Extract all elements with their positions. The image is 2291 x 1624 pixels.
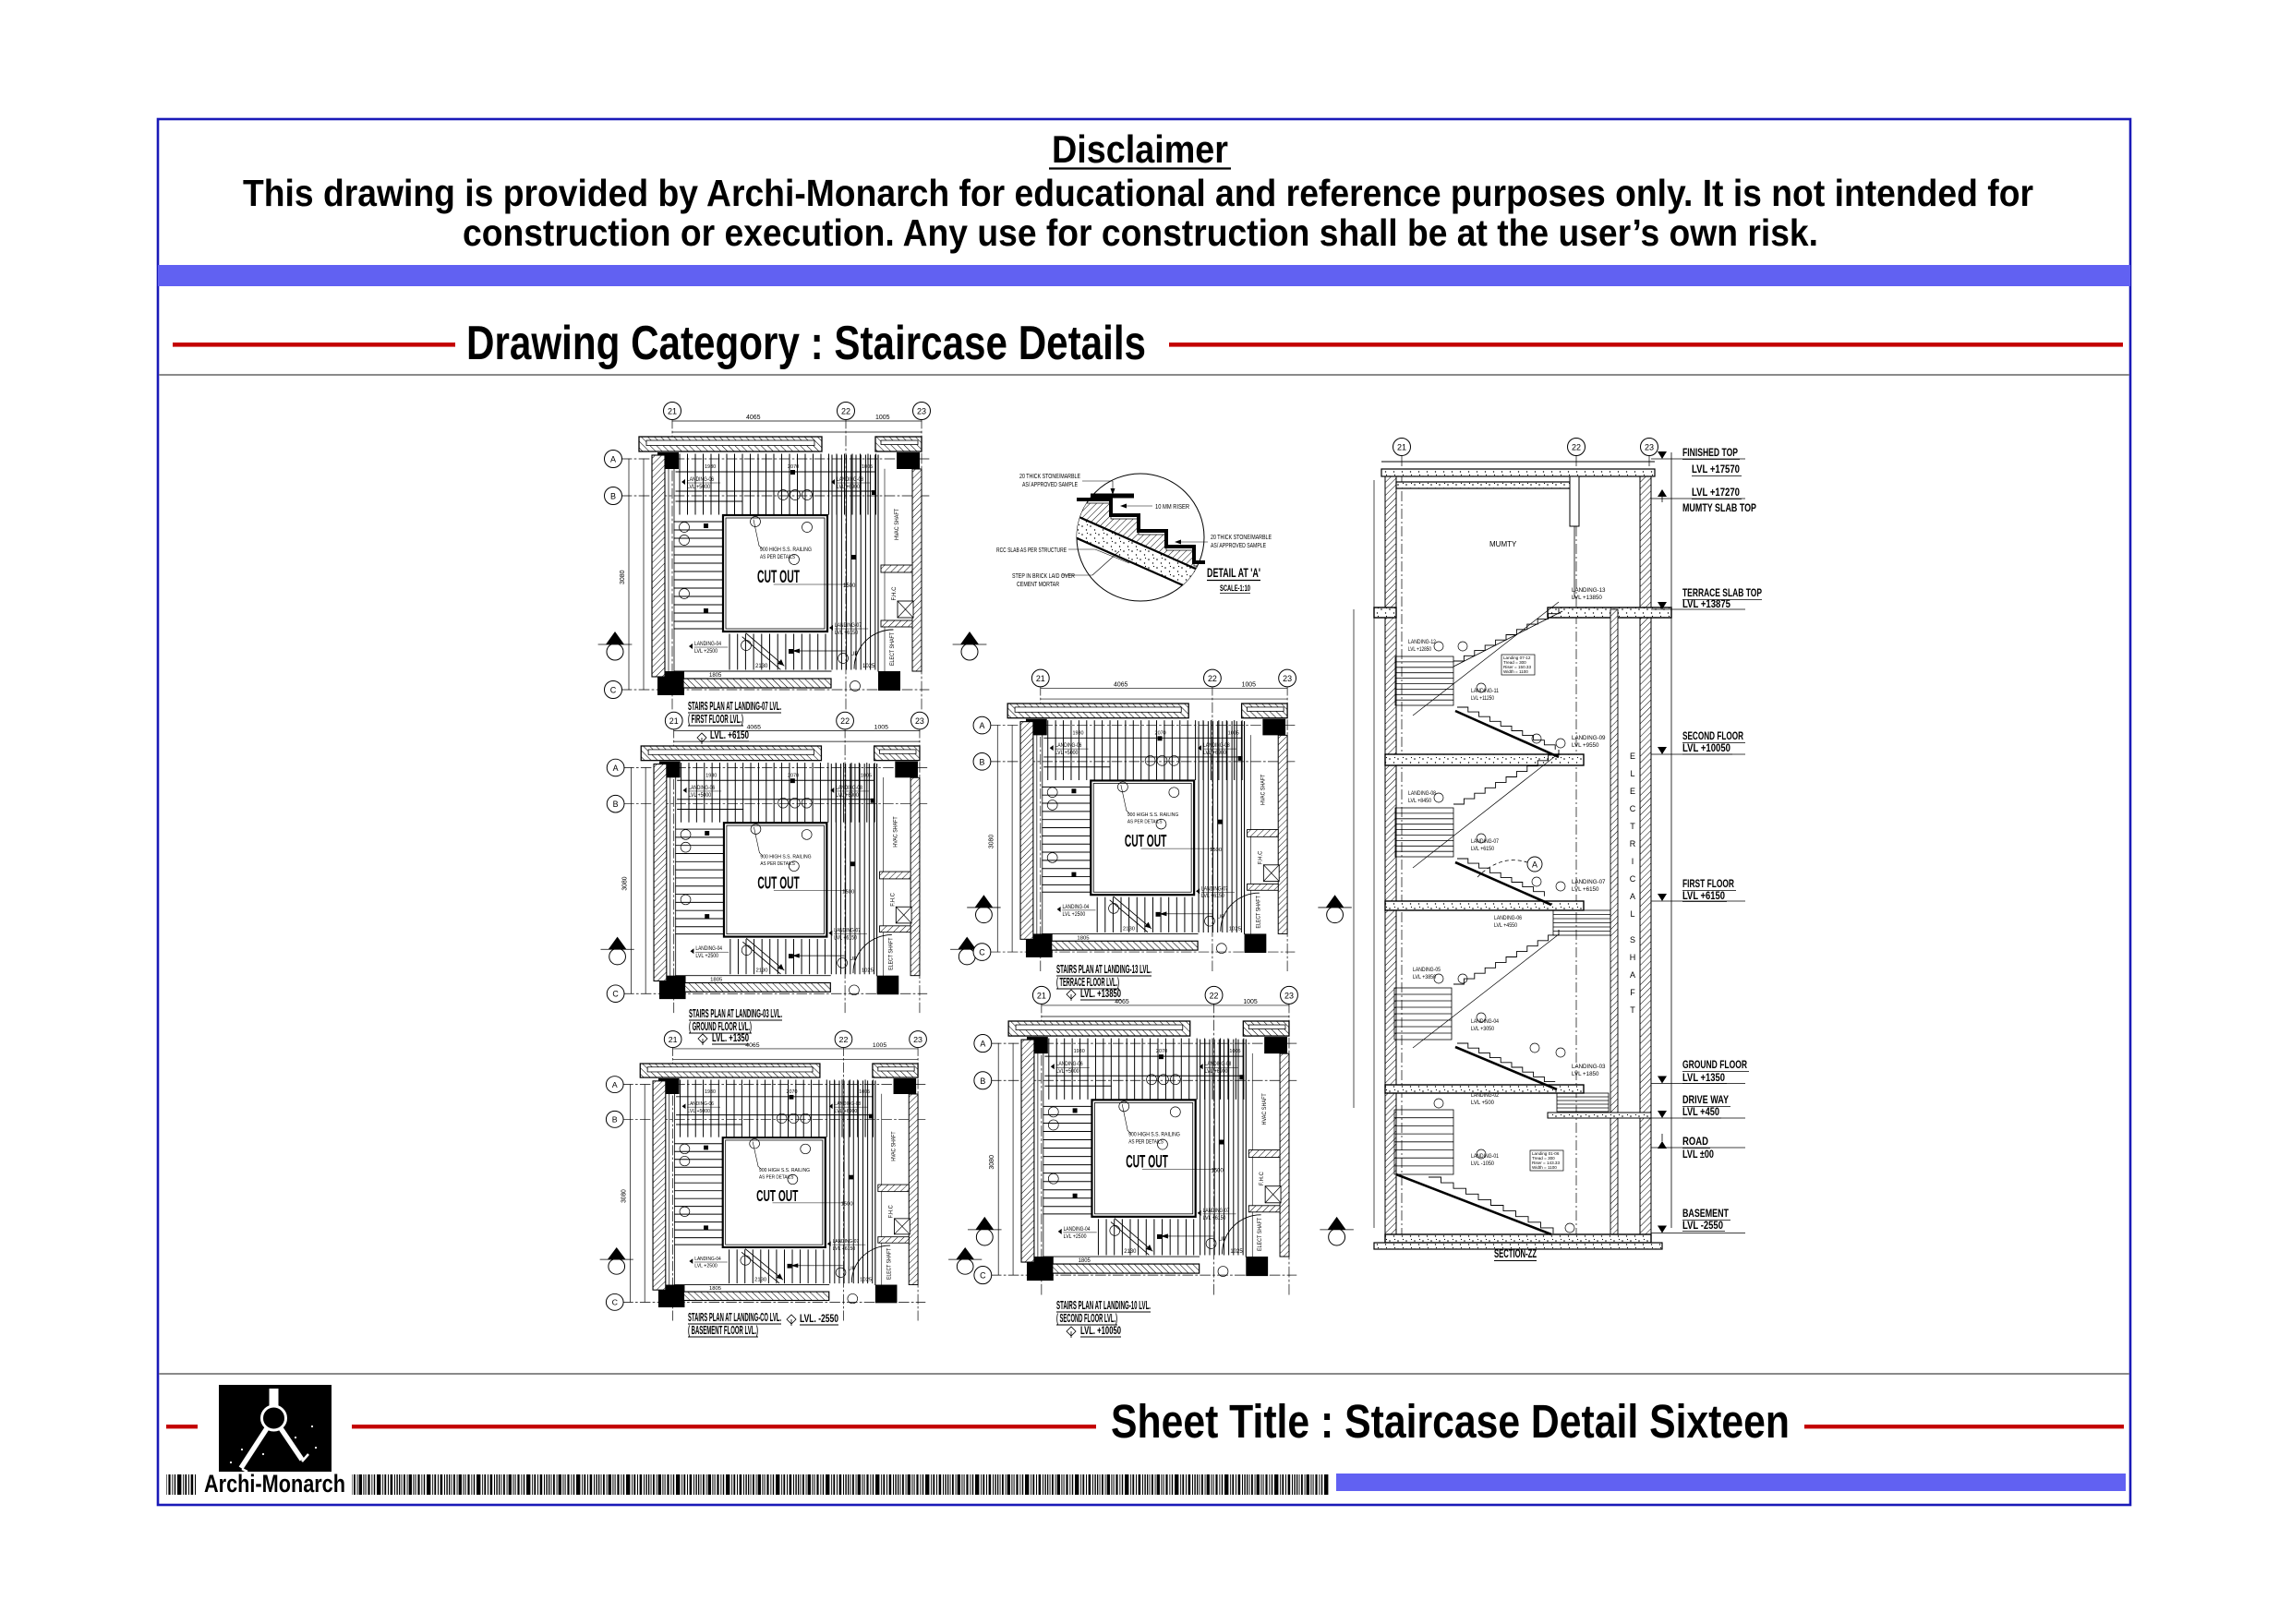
svg-text:STAIRS PLAN AT LANDING-CO LVL.: STAIRS PLAN AT LANDING-CO LVL. (688, 1310, 781, 1324)
svg-text:GROUND FLOOR: GROUND FLOOR (1682, 1058, 1747, 1071)
svg-text:LANDING-11: LANDING-11 (1471, 688, 1499, 694)
svg-text:23: 23 (1645, 443, 1654, 452)
svg-text:BASEMENT: BASEMENT (1682, 1207, 1729, 1220)
svg-text:21: 21 (1397, 443, 1406, 452)
svg-text:STAIRS PLAN AT LANDING-03 LVL.: STAIRS PLAN AT LANDING-03 LVL. (689, 1006, 782, 1020)
svg-text:LVL +13850: LVL +13850 (1572, 595, 1602, 601)
svg-text:LANDING-07: LANDING-07 (1572, 879, 1606, 885)
svg-text:LANDING-02: LANDING-02 (1471, 1092, 1499, 1099)
svg-text:STAIRS PLAN AT LANDING-07 LVL.: STAIRS PLAN AT LANDING-07 LVL. (688, 699, 781, 713)
svg-text:Sheet Title : Staircase Detail: Sheet Title : Staircase Detail Sixteen (1111, 1395, 1790, 1448)
svg-text:Width = 1100: Width = 1100 (1503, 669, 1528, 674)
svg-text:LVL +3850: LVL +3850 (1413, 974, 1436, 980)
svg-text:Archi-Monarch: Archi-Monarch (204, 1470, 345, 1498)
svg-text:LVL +450: LVL +450 (1682, 1105, 1719, 1118)
svg-text:20 THICK STONE/MARBLE: 20 THICK STONE/MARBLE (1019, 474, 1080, 480)
svg-text:SCALE-1:10: SCALE-1:10 (1220, 583, 1250, 593)
svg-text:This drawing is provided by Ar: This drawing is provided by Archi-Monarc… (243, 172, 2033, 214)
svg-text:LVL. +1350: LVL. +1350 (712, 1031, 749, 1044)
svg-text:( BASEMENT FLOOR LVL.): ( BASEMENT FLOOR LVL.) (688, 1323, 758, 1337)
svg-text:ROAD: ROAD (1682, 1135, 1708, 1148)
svg-text:SECOND FLOOR: SECOND FLOOR (1682, 729, 1743, 742)
svg-text:FIRST FLOOR: FIRST FLOOR (1682, 877, 1734, 890)
svg-text:LVL +6150: LVL +6150 (1471, 846, 1494, 852)
svg-text:MUMTY: MUMTY (1489, 540, 1517, 548)
svg-text:22: 22 (1572, 443, 1581, 452)
svg-text:FINISHED TOP: FINISHED TOP (1682, 446, 1738, 459)
svg-text:LVL +17570: LVL +17570 (1692, 463, 1740, 475)
svg-text:LVL +3050: LVL +3050 (1471, 1026, 1494, 1032)
svg-text:LVL -1050: LVL -1050 (1471, 1161, 1494, 1167)
svg-text:LVL +9550: LVL +9550 (1572, 742, 1599, 749)
svg-text:MUMTY SLAB TOP: MUMTY SLAB TOP (1682, 501, 1756, 514)
svg-text:LVL. -2550: LVL. -2550 (800, 1312, 838, 1325)
svg-text:LVL. +10050: LVL. +10050 (1080, 1324, 1121, 1337)
svg-text:LVL +6150: LVL +6150 (1682, 889, 1725, 902)
svg-text:LVL +11250: LVL +11250 (1471, 695, 1494, 702)
svg-text:LVL +12850: LVL +12850 (1408, 646, 1431, 653)
svg-text:DRIVE WAY: DRIVE WAY (1682, 1093, 1729, 1106)
svg-text:Disclaimer: Disclaimer (1052, 127, 1228, 171)
svg-text:LVL +6150: LVL +6150 (1572, 886, 1599, 893)
svg-text:ELECTRICALSHAFT: ELECTRICALSHAFT (1630, 752, 1636, 1015)
svg-text:LANDING-13: LANDING-13 (1572, 587, 1606, 594)
svg-text:20 THICK STONE/MARBLE: 20 THICK STONE/MARBLE (1211, 535, 1272, 541)
svg-text:DETAIL AT 'A': DETAIL AT 'A' (1207, 565, 1260, 580)
svg-text:STAIRS PLAN AT LANDING-10 LVL.: STAIRS PLAN AT LANDING-10 LVL. (1056, 1298, 1151, 1312)
svg-text:Drawing Category : Staircase D: Drawing Category : Staircase Details (466, 317, 1146, 370)
svg-text:LANDING-03: LANDING-03 (1572, 1064, 1606, 1070)
svg-text:LVL +8450: LVL +8450 (1408, 798, 1431, 804)
svg-text:A: A (1532, 860, 1537, 870)
svg-text:LVL +17270: LVL +17270 (1692, 486, 1740, 499)
svg-text:( FIRST FLOOR LVL.): ( FIRST FLOOR LVL.) (688, 712, 743, 726)
svg-text:LVL +13875: LVL +13875 (1682, 597, 1730, 610)
svg-text:LVL +4550: LVL +4550 (1494, 922, 1517, 929)
svg-text:LANDING-07: LANDING-07 (1471, 838, 1499, 845)
svg-text:Width = 1100: Width = 1100 (1532, 1165, 1557, 1170)
svg-text:10 MM RISER: 10 MM RISER (1155, 504, 1189, 511)
svg-text:construction or execution. Any: construction or execution. Any use for c… (463, 211, 1818, 254)
svg-text:LANDING-09: LANDING-09 (1572, 735, 1606, 741)
svg-text:STAIRS PLAN AT LANDING-13 LVL.: STAIRS PLAN AT LANDING-13 LVL. (1056, 962, 1152, 976)
svg-text:CEMENT MORTAR: CEMENT MORTAR (1017, 582, 1059, 588)
svg-text:STEP IN BRICK LAID OVER: STEP IN BRICK LAID OVER (1012, 573, 1075, 580)
svg-text:LVL ±00: LVL ±00 (1682, 1148, 1714, 1161)
svg-text:RCC SLAB AS PER STRUCTURE: RCC SLAB AS PER STRUCTURE (996, 547, 1067, 554)
svg-text:LVL -2550: LVL -2550 (1682, 1219, 1723, 1232)
svg-text:LANDING-05: LANDING-05 (1413, 967, 1441, 973)
svg-text:LVL +1350: LVL +1350 (1682, 1071, 1725, 1084)
svg-text:LVL +1850: LVL +1850 (1572, 1071, 1599, 1077)
svg-text:AS/ APPROVED SAMPLE: AS/ APPROVED SAMPLE (1211, 543, 1266, 549)
svg-text:( SECOND FLOOR LVL.): ( SECOND FLOOR LVL.) (1056, 1311, 1117, 1325)
svg-text:LANDING-12: LANDING-12 (1408, 639, 1436, 645)
svg-text:LVL +10050: LVL +10050 (1682, 741, 1730, 754)
svg-text:LANDING-06: LANDING-06 (1494, 915, 1522, 921)
svg-text:LVL +500: LVL +500 (1471, 1100, 1495, 1106)
svg-text:AS/ APPROVED SAMPLE: AS/ APPROVED SAMPLE (1022, 482, 1078, 488)
svg-text:SECTION-ZZ: SECTION-ZZ (1494, 1246, 1537, 1260)
svg-text:LANDING-08: LANDING-08 (1408, 790, 1436, 797)
